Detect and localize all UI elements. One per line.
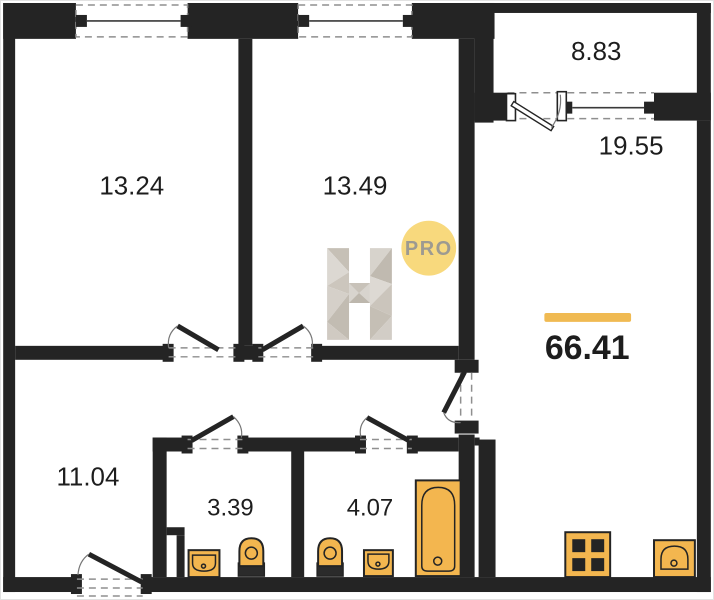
- pro-badge: PRO: [401, 221, 456, 276]
- sink-icon: [364, 550, 393, 576]
- bathtub-icon: [416, 480, 461, 576]
- pro-badge-label: PRO: [405, 238, 453, 260]
- total-area-block: 66.41: [544, 313, 631, 367]
- area-label-bathroom: 4.07: [347, 494, 394, 521]
- sink-icon: [189, 550, 220, 577]
- total-area-label: 66.41: [545, 329, 630, 367]
- area-label-kitchen-living: 19.55: [599, 132, 664, 160]
- area-label-wc: 3.39: [207, 494, 254, 521]
- area-label-balcony: 8.83: [571, 38, 621, 66]
- window-room-top-middle: [298, 5, 414, 37]
- stove-icon: [565, 532, 610, 577]
- area-label-room-top-middle: 13.49: [323, 172, 388, 200]
- floor-plan: PRO 13.24 13.49 8.83 19.55 11.04 3.39 4.…: [0, 0, 714, 600]
- area-label-room-top-left: 13.24: [99, 172, 164, 200]
- area-label-hallway: 11.04: [56, 463, 119, 491]
- toilet-icon: [238, 538, 264, 576]
- floor-plan-canvas: PRO 13.24 13.49 8.83 19.55 11.04 3.39 4.…: [1, 1, 713, 599]
- kitchen-sink-icon: [654, 540, 695, 577]
- total-area-accent-bar: [544, 313, 631, 322]
- toilet-icon: [317, 538, 343, 576]
- window-room-top-left: [76, 5, 192, 37]
